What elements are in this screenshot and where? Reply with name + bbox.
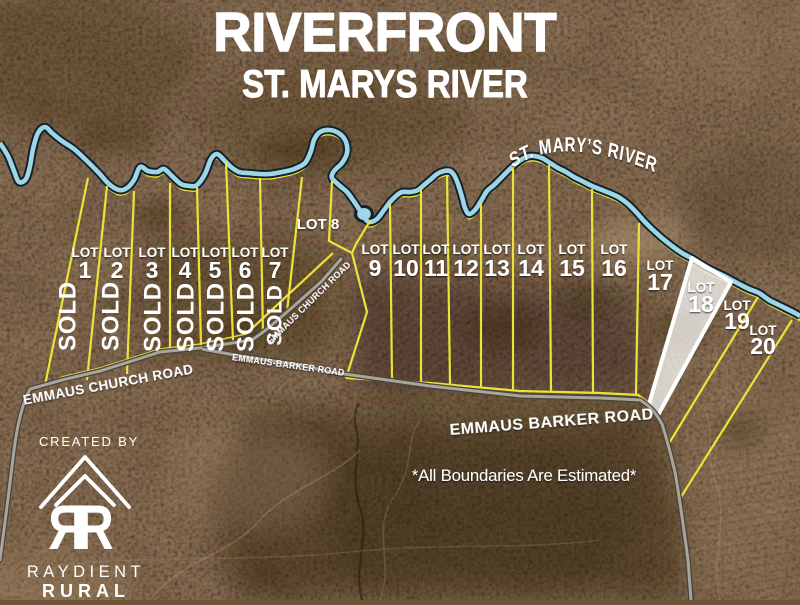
svg-text:R: R [77, 493, 114, 563]
svg-text:RURAL: RURAL [42, 581, 130, 600]
svg-text:CREATED BY: CREATED BY [39, 434, 139, 449]
svg-text:16: 16 [601, 255, 627, 281]
svg-text:SOLD: SOLD [172, 282, 199, 352]
svg-text:RAYDIENT: RAYDIENT [27, 563, 145, 581]
svg-text:*All Boundaries Are Estimated*: *All Boundaries Are Estimated* [412, 466, 637, 485]
svg-text:1: 1 [79, 257, 92, 283]
svg-text:11: 11 [424, 255, 449, 281]
svg-text:13: 13 [484, 255, 510, 281]
svg-text:6: 6 [239, 257, 252, 283]
svg-text:20: 20 [750, 333, 776, 359]
svg-text:4: 4 [179, 257, 192, 283]
svg-text:17: 17 [647, 269, 673, 295]
svg-text:3: 3 [146, 257, 159, 283]
svg-text:SOLD: SOLD [54, 281, 81, 351]
svg-text:RIVERFRONT: RIVERFRONT [213, 2, 556, 63]
svg-text:SOLD: SOLD [97, 281, 124, 351]
svg-text:5: 5 [209, 257, 222, 283]
svg-text:15: 15 [559, 255, 585, 281]
svg-text:SOLD: SOLD [202, 282, 229, 352]
svg-text:18: 18 [688, 291, 714, 317]
svg-text:14: 14 [518, 255, 544, 281]
svg-text:12: 12 [453, 255, 479, 281]
svg-text:2: 2 [111, 257, 124, 283]
svg-text:SOLD: SOLD [232, 282, 259, 352]
svg-text:19: 19 [724, 308, 750, 334]
svg-text:10: 10 [393, 255, 419, 281]
svg-text:SOLD: SOLD [139, 282, 166, 352]
svg-text:9: 9 [369, 255, 382, 281]
svg-text:7: 7 [269, 257, 282, 283]
svg-text:LOT 8: LOT 8 [297, 216, 340, 233]
svg-text:ST. MARYS RIVER: ST. MARYS RIVER [242, 63, 528, 106]
